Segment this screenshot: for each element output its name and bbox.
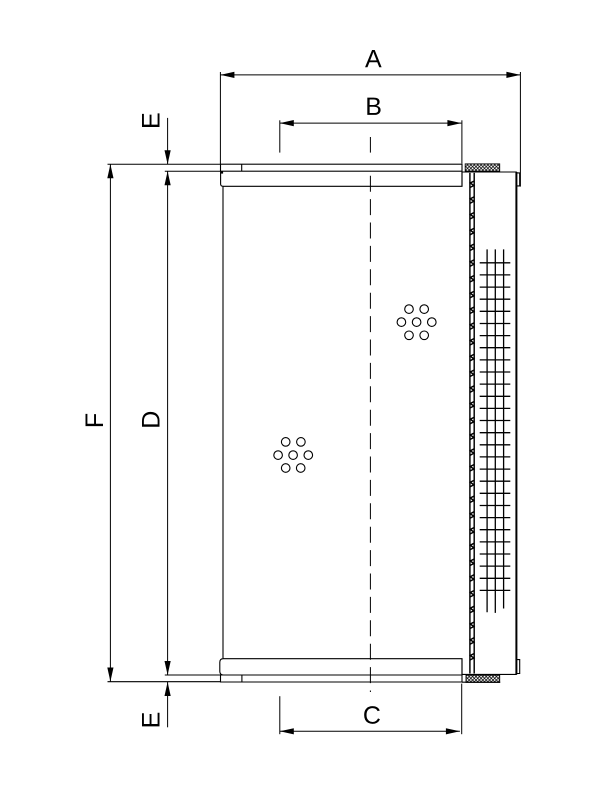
svg-text:B: B xyxy=(365,93,382,121)
svg-text:E: E xyxy=(138,112,166,129)
svg-text:A: A xyxy=(365,45,382,73)
svg-text:F: F xyxy=(81,413,109,428)
svg-text:D: D xyxy=(137,411,165,429)
svg-text:E: E xyxy=(137,712,165,729)
svg-text:C: C xyxy=(363,702,381,730)
